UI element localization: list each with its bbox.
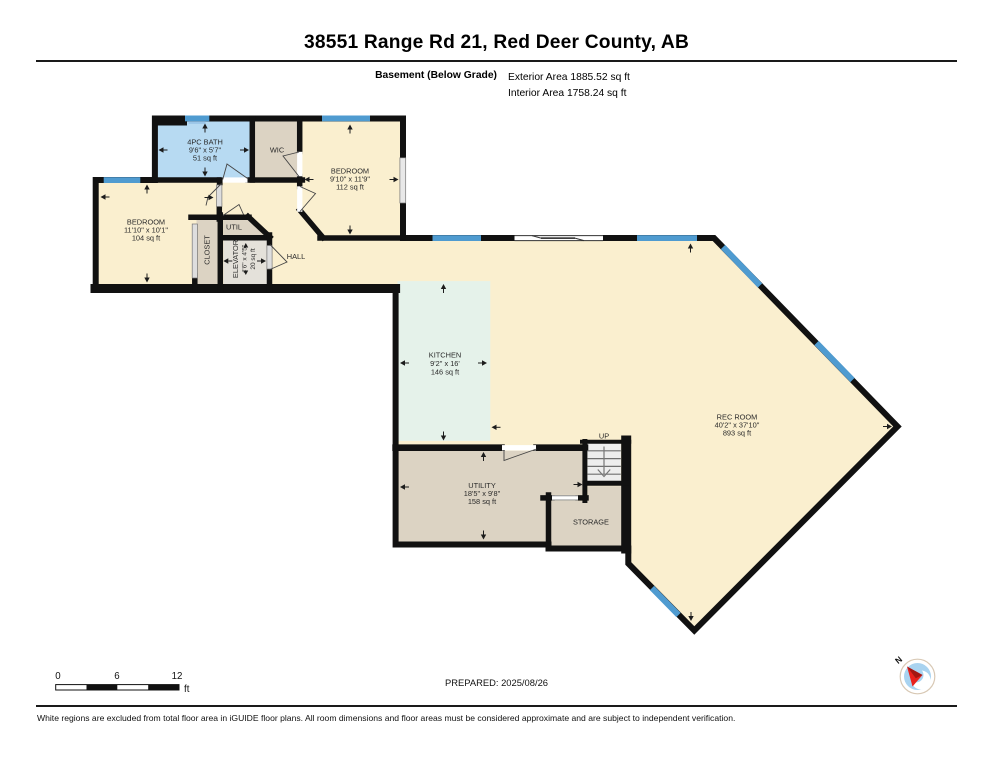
svg-text:STORAGE: STORAGE [573,518,609,527]
svg-text:HALL: HALL [287,252,306,261]
svg-text:20 sq ft: 20 sq ft [250,248,257,270]
svg-text:12: 12 [172,671,183,682]
svg-text:ELEVATOR: ELEVATOR [231,240,240,278]
svg-text:0: 0 [55,671,61,682]
svg-text:WIC: WIC [270,145,285,154]
svg-text:6: 6 [114,671,119,682]
svg-text:UTILITY18'5" x 9'8"158 sq ft: UTILITY18'5" x 9'8"158 sq ft [464,481,501,506]
svg-text:UP: UP [599,432,609,441]
svg-text:N: N [893,654,904,666]
svg-text:KITCHEN9'2" x 16'146 sq ft: KITCHEN9'2" x 16'146 sq ft [429,350,461,376]
svg-text:4'6" x 4'5": 4'6" x 4'5" [242,244,249,273]
svg-text:UTIL: UTIL [226,222,242,231]
svg-text:ft: ft [184,684,190,695]
svg-text:CLOSET: CLOSET [203,235,212,265]
